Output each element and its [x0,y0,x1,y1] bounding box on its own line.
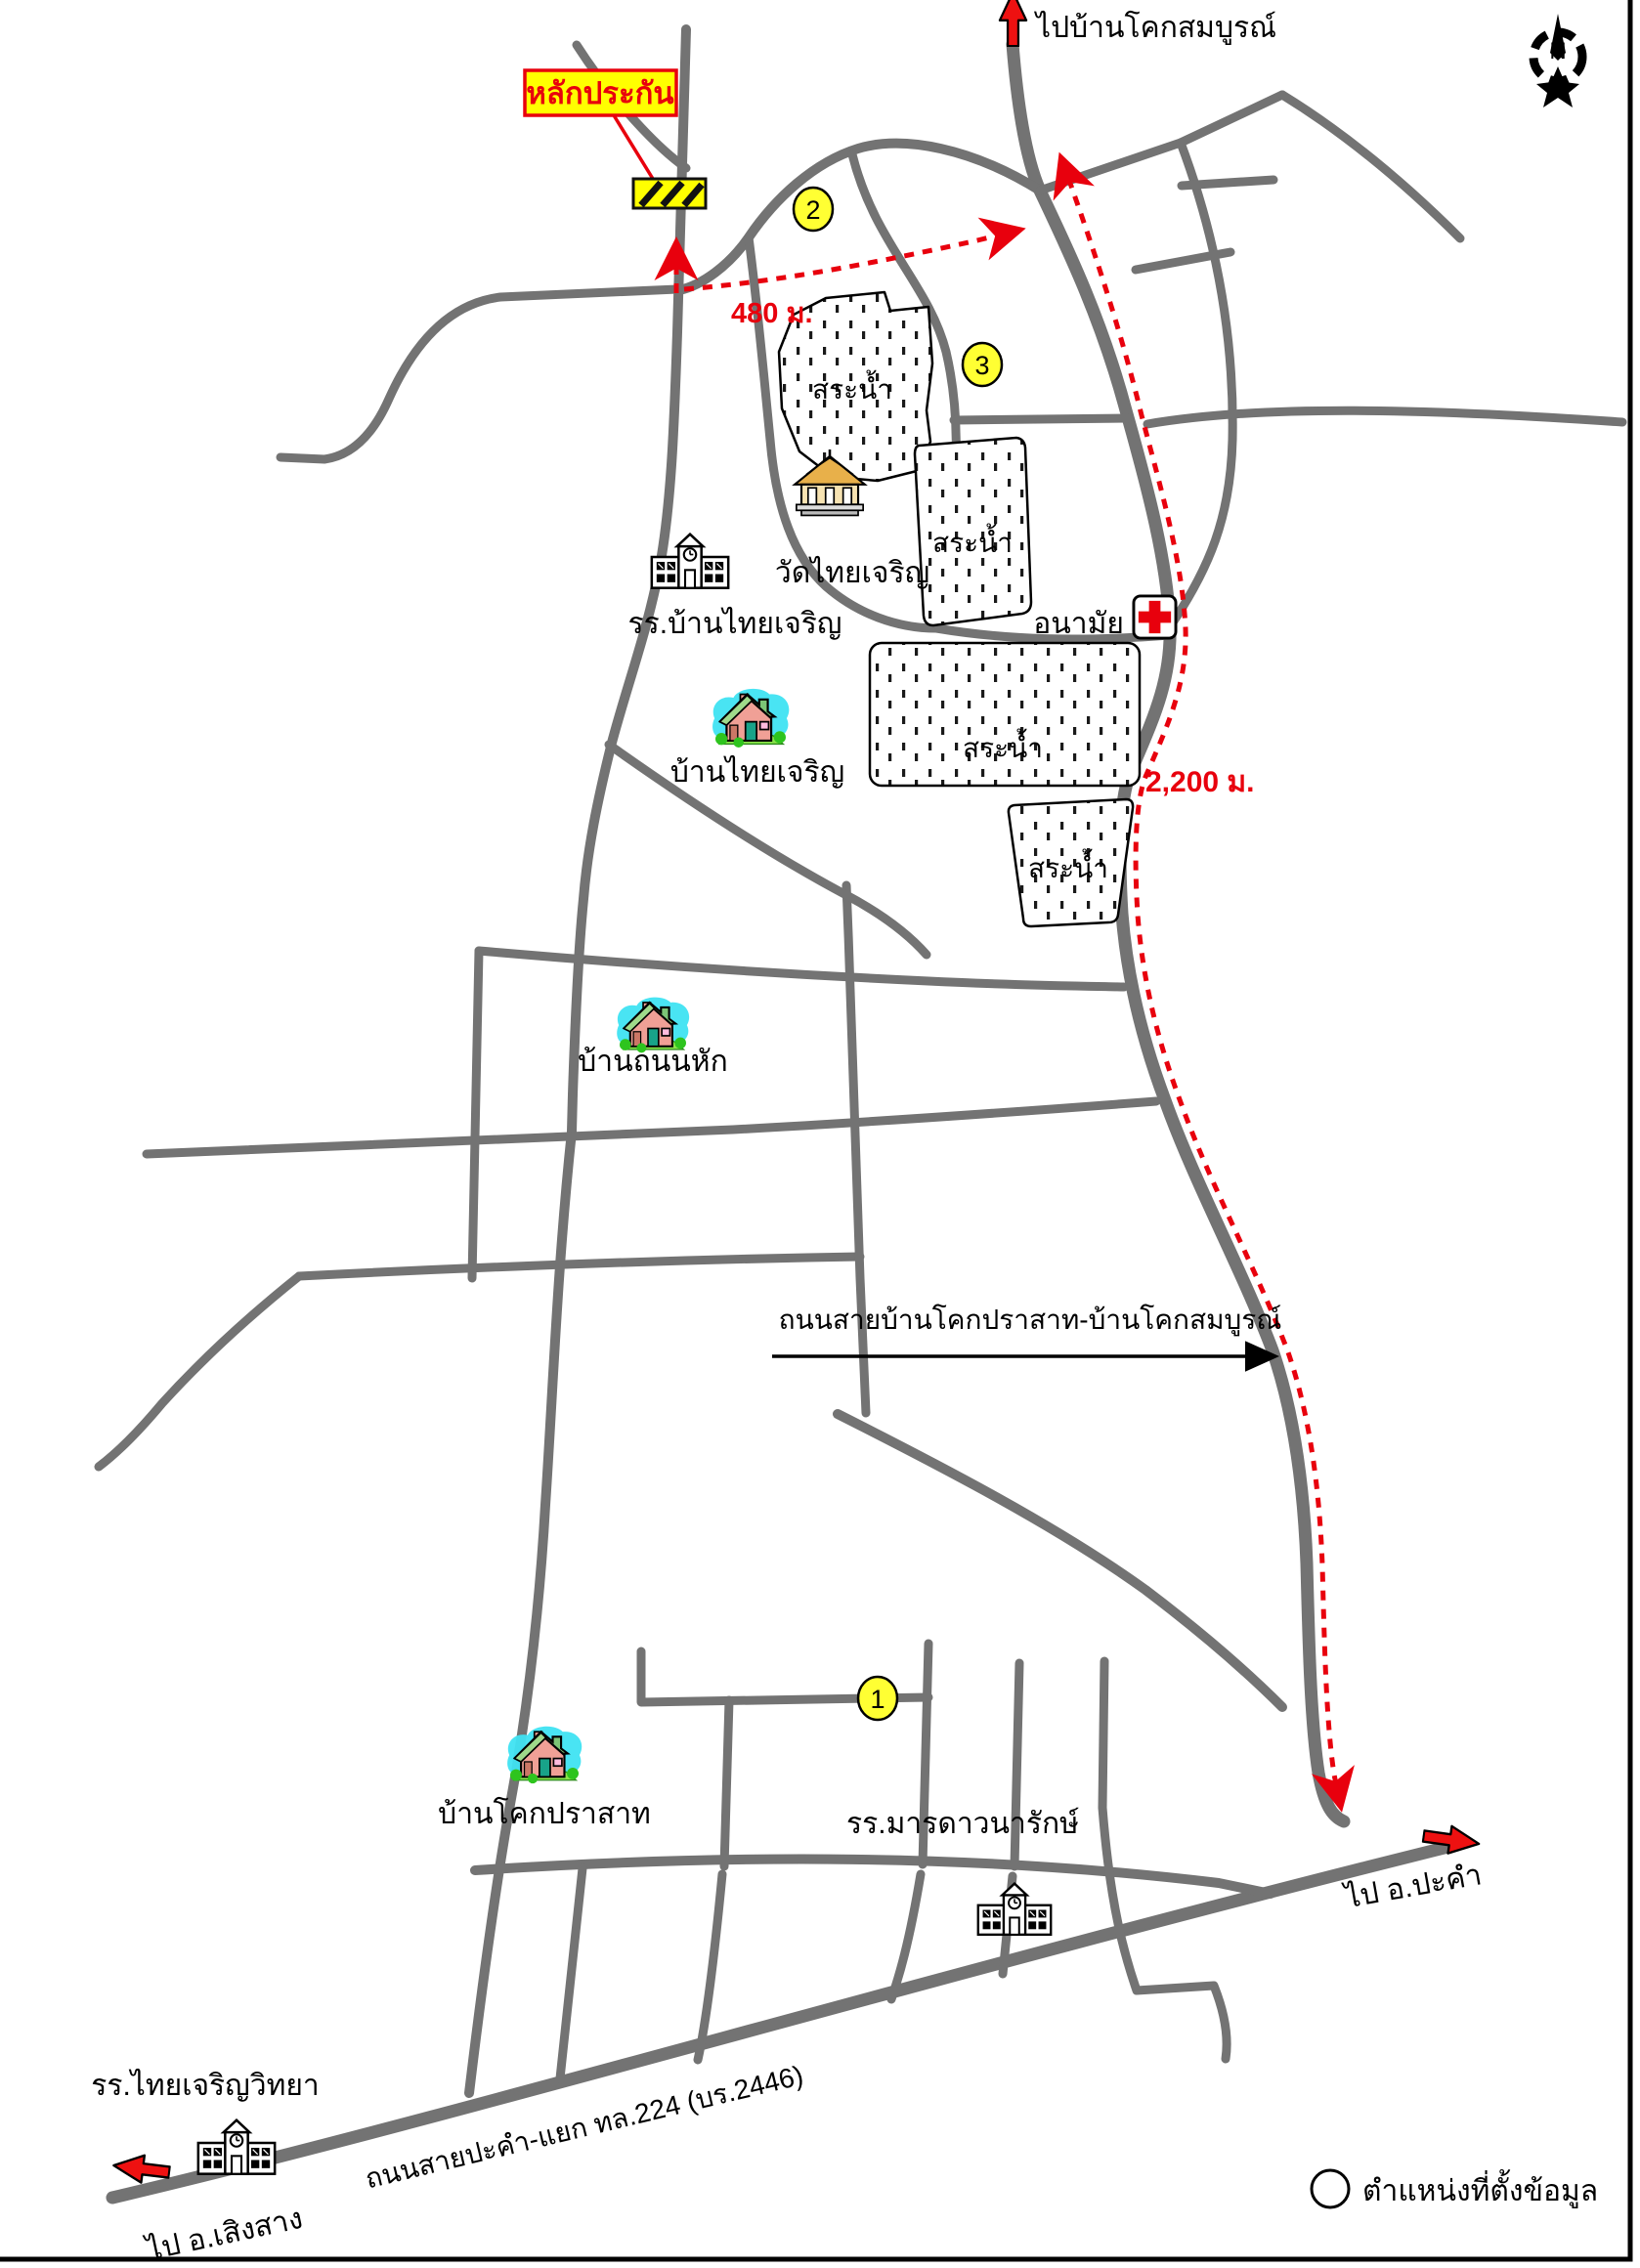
compass-rose: N [1533,14,1582,107]
road-ne-stub [1182,180,1273,186]
map-canvas: สระน้ำ สระน้ำ สระน้ำ สระน้ำ 480 ม. 2,200… [0,0,1640,2268]
road-main-ns [1013,44,1344,1821]
road-highway-224 [112,1845,1456,2198]
distance-2200-label: 2,200 ม. [1145,766,1255,798]
road-ne-east [1147,410,1622,424]
marker-1: 1 [858,1677,897,1720]
house-icon-thaicharoen [712,689,789,748]
cross-road-label: ถนนสายบ้านโคกปราสาท-บ้านโคกสมบูรณ์ [779,1304,1282,1337]
village-thanonhak-label: บ้านถนนหัก [578,1046,728,1078]
road-marker-west [281,289,677,459]
road-mid-v1 [472,951,479,1278]
road-ne-fork [1040,95,1282,191]
legend-label: ตำแหน่งที่ตั้งข้อมูล [1362,2169,1598,2208]
school-mardawanarak-label: รร.มารดาวนารักษ์ [846,1807,1079,1840]
school-banthaicharoen-label: รร.บ้านไทยเจริญ [628,606,842,640]
pond-3-label: สระน้ำ [963,728,1043,763]
village-thaicharoen-label: บ้านไทยเจริญ [670,754,844,789]
road-ne-loop [1171,143,1232,625]
pond-4-label: สระน้ำ [1028,848,1108,883]
marker-1-label: 1 [870,1685,885,1714]
road-s-v5 [1102,1661,1227,2059]
north-exit-arrow-icon [1000,0,1026,46]
house-icon-thanonhak [617,998,689,1053]
pond-1-label: สระน้ำ [812,369,892,405]
exit-north: ไปบ้านโคกสมบูรณ์ [1000,0,1276,46]
road-s-v1 [560,1868,583,2078]
pond-2-label: สระน้ำ [932,523,1013,558]
health-cross-icon [1134,596,1176,638]
north-exit-label: ไปบ้านโคกสมบูรณ์ [1034,10,1276,45]
pond-3 [870,643,1140,786]
school-icon-thaicharoenwittaya [198,2120,275,2174]
road-s-v2 [698,1700,729,2060]
road-sw-diag [99,1276,299,1467]
collateral-marker-icon [633,179,706,208]
school-icon-mardawanarak [978,1884,1051,1935]
map-page: สระน้ำ สระน้ำ สระน้ำ สระน้ำ 480 ม. 2,200… [0,0,1640,2268]
health-center-label: อนามัย [1033,608,1124,640]
legend-circle-icon [1312,2170,1349,2207]
road-pond-conn [954,418,1128,420]
school-thaicharoenwittaya-label: รร.ไทยเจริญวิทยา [91,2068,320,2102]
road-mid-c [299,1257,860,1276]
road-ne-cont [1282,95,1460,238]
legend: ตำแหน่งที่ตั้งข้อมูล [1312,2169,1598,2208]
cross-road-callout: ถนนสายบ้านโคกปราสาท-บ้านโคกสมบูรณ์ [772,1304,1281,1356]
road-mid-b [147,1101,1156,1154]
marker-3: 3 [963,343,1002,386]
road-bulge [838,1414,1282,1707]
village-khokprasat-label: บ้านโคกปราสาท [438,1796,651,1830]
temple-label: วัดไทยเจริญ [775,555,929,589]
marker-2-label: 2 [805,195,820,225]
collateral-label: หลักประกัน [526,76,673,110]
marker-2: 2 [794,188,833,231]
marker-3-label: 3 [974,351,989,380]
road-s-h1 [475,1860,1271,1894]
compass-letter: N [1549,38,1566,64]
distance-480-label: 480 ม. [731,298,813,329]
